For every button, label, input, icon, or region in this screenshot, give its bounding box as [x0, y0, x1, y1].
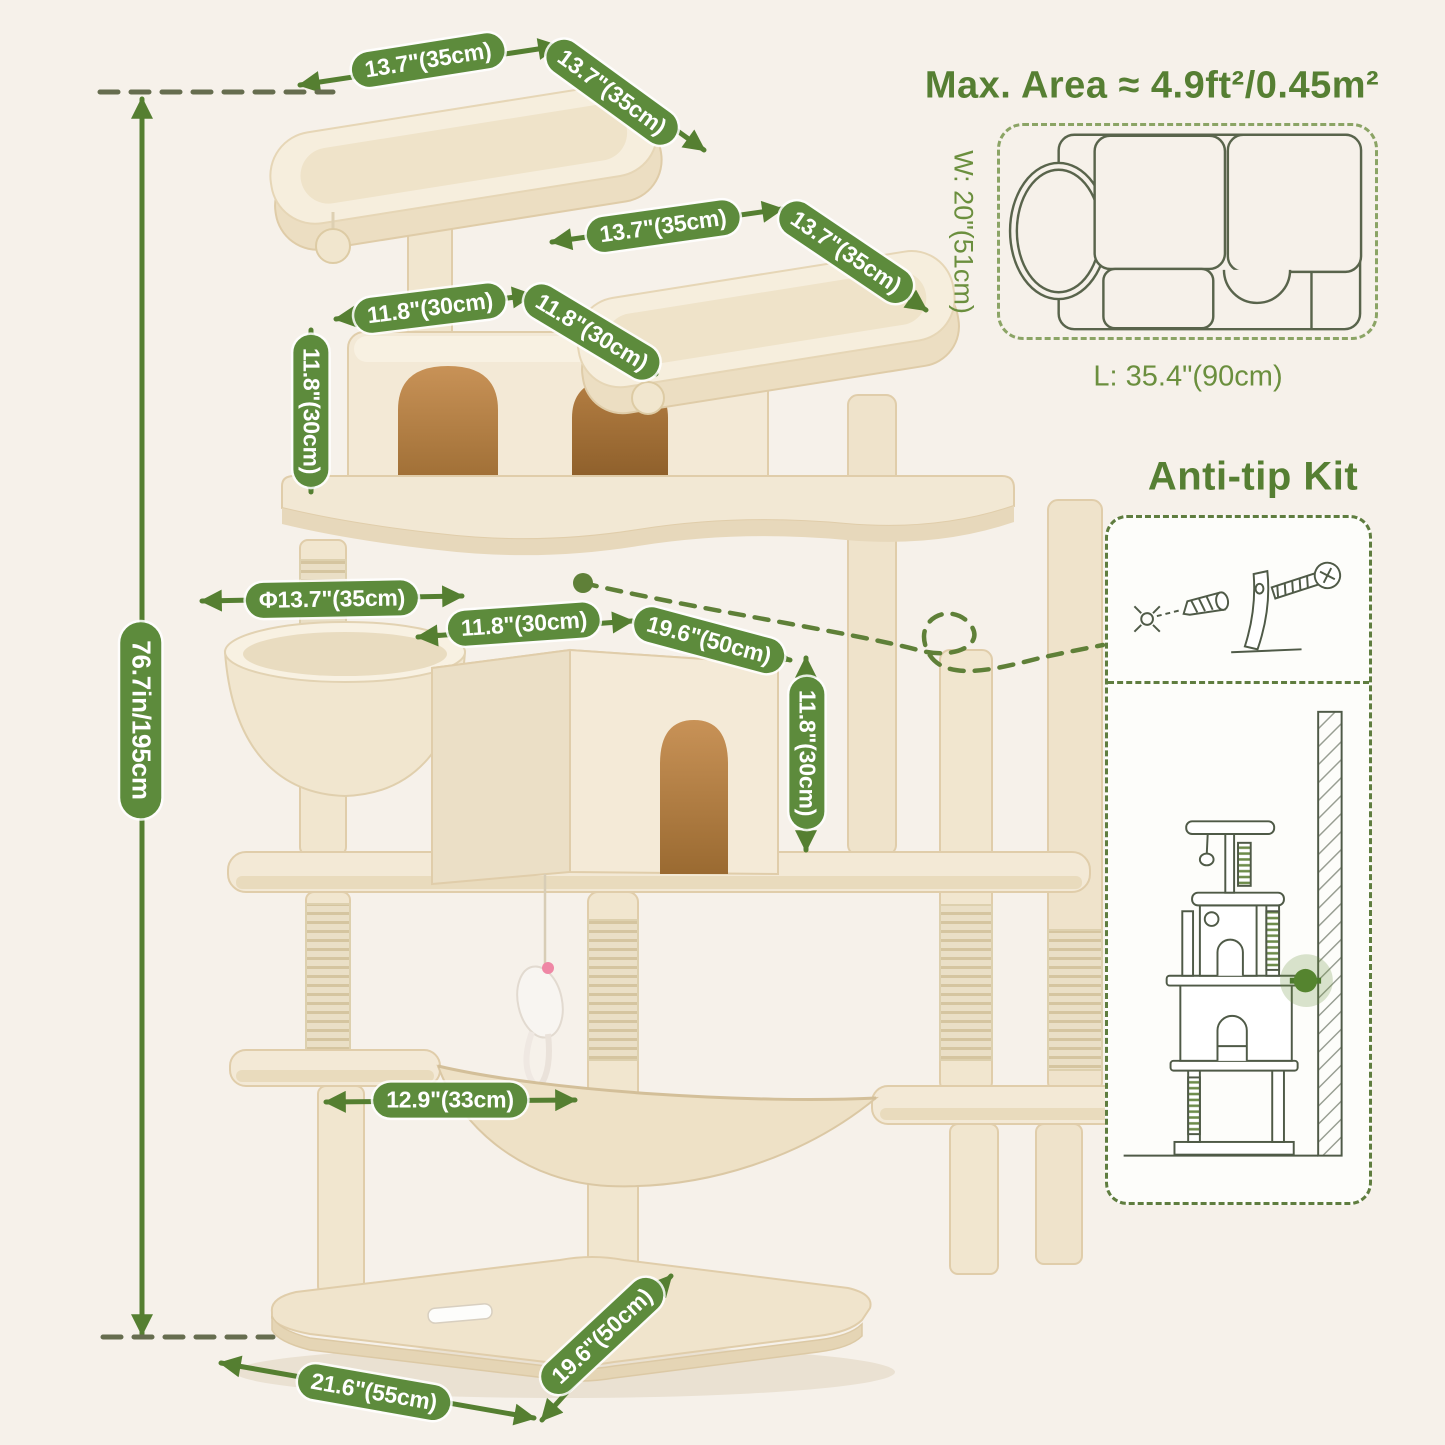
anti-tip-title: Anti-tip Kit — [1148, 455, 1358, 500]
wavy-platform — [282, 476, 1014, 555]
footprint-length-label: L: 35.4"(90cm) — [1093, 361, 1282, 394]
footprint-width-label: W: 20"(51cm) — [948, 150, 979, 314]
wall — [1318, 712, 1341, 1156]
dim-cube-height: 11.8"(30cm) — [790, 677, 825, 829]
cube-condo — [432, 650, 778, 884]
hanging-basket — [225, 622, 465, 796]
dim-basket-diameter: Φ13.7"(35cm) — [246, 580, 419, 618]
product-dimension-diagram: 13.7"(35cm) 13.7"(35cm) 13.7"(35cm) 13.7… — [0, 0, 1445, 1445]
anti-tip-attach-dot — [573, 573, 593, 593]
dim-total-height: 76.7in/195cm — [121, 622, 162, 818]
footprint-panel — [997, 123, 1378, 340]
footprint-diagram — [1000, 126, 1375, 337]
toy-mouse — [511, 874, 569, 1086]
wall-mount-diagram — [1108, 684, 1369, 1204]
dim-condo-height: 11.8"(30cm) — [294, 335, 329, 487]
anti-tip-panel — [1105, 515, 1372, 1205]
max-area-title: Max. Area ≈ 4.9ft²/0.45m² — [925, 65, 1379, 108]
dim-hammock-width: 12.9"(33cm) — [373, 1083, 527, 1118]
anchor-screw-diagram — [1108, 518, 1369, 678]
lower-right-platform — [872, 1086, 1128, 1274]
cat-tree-illustration — [225, 78, 1128, 1398]
